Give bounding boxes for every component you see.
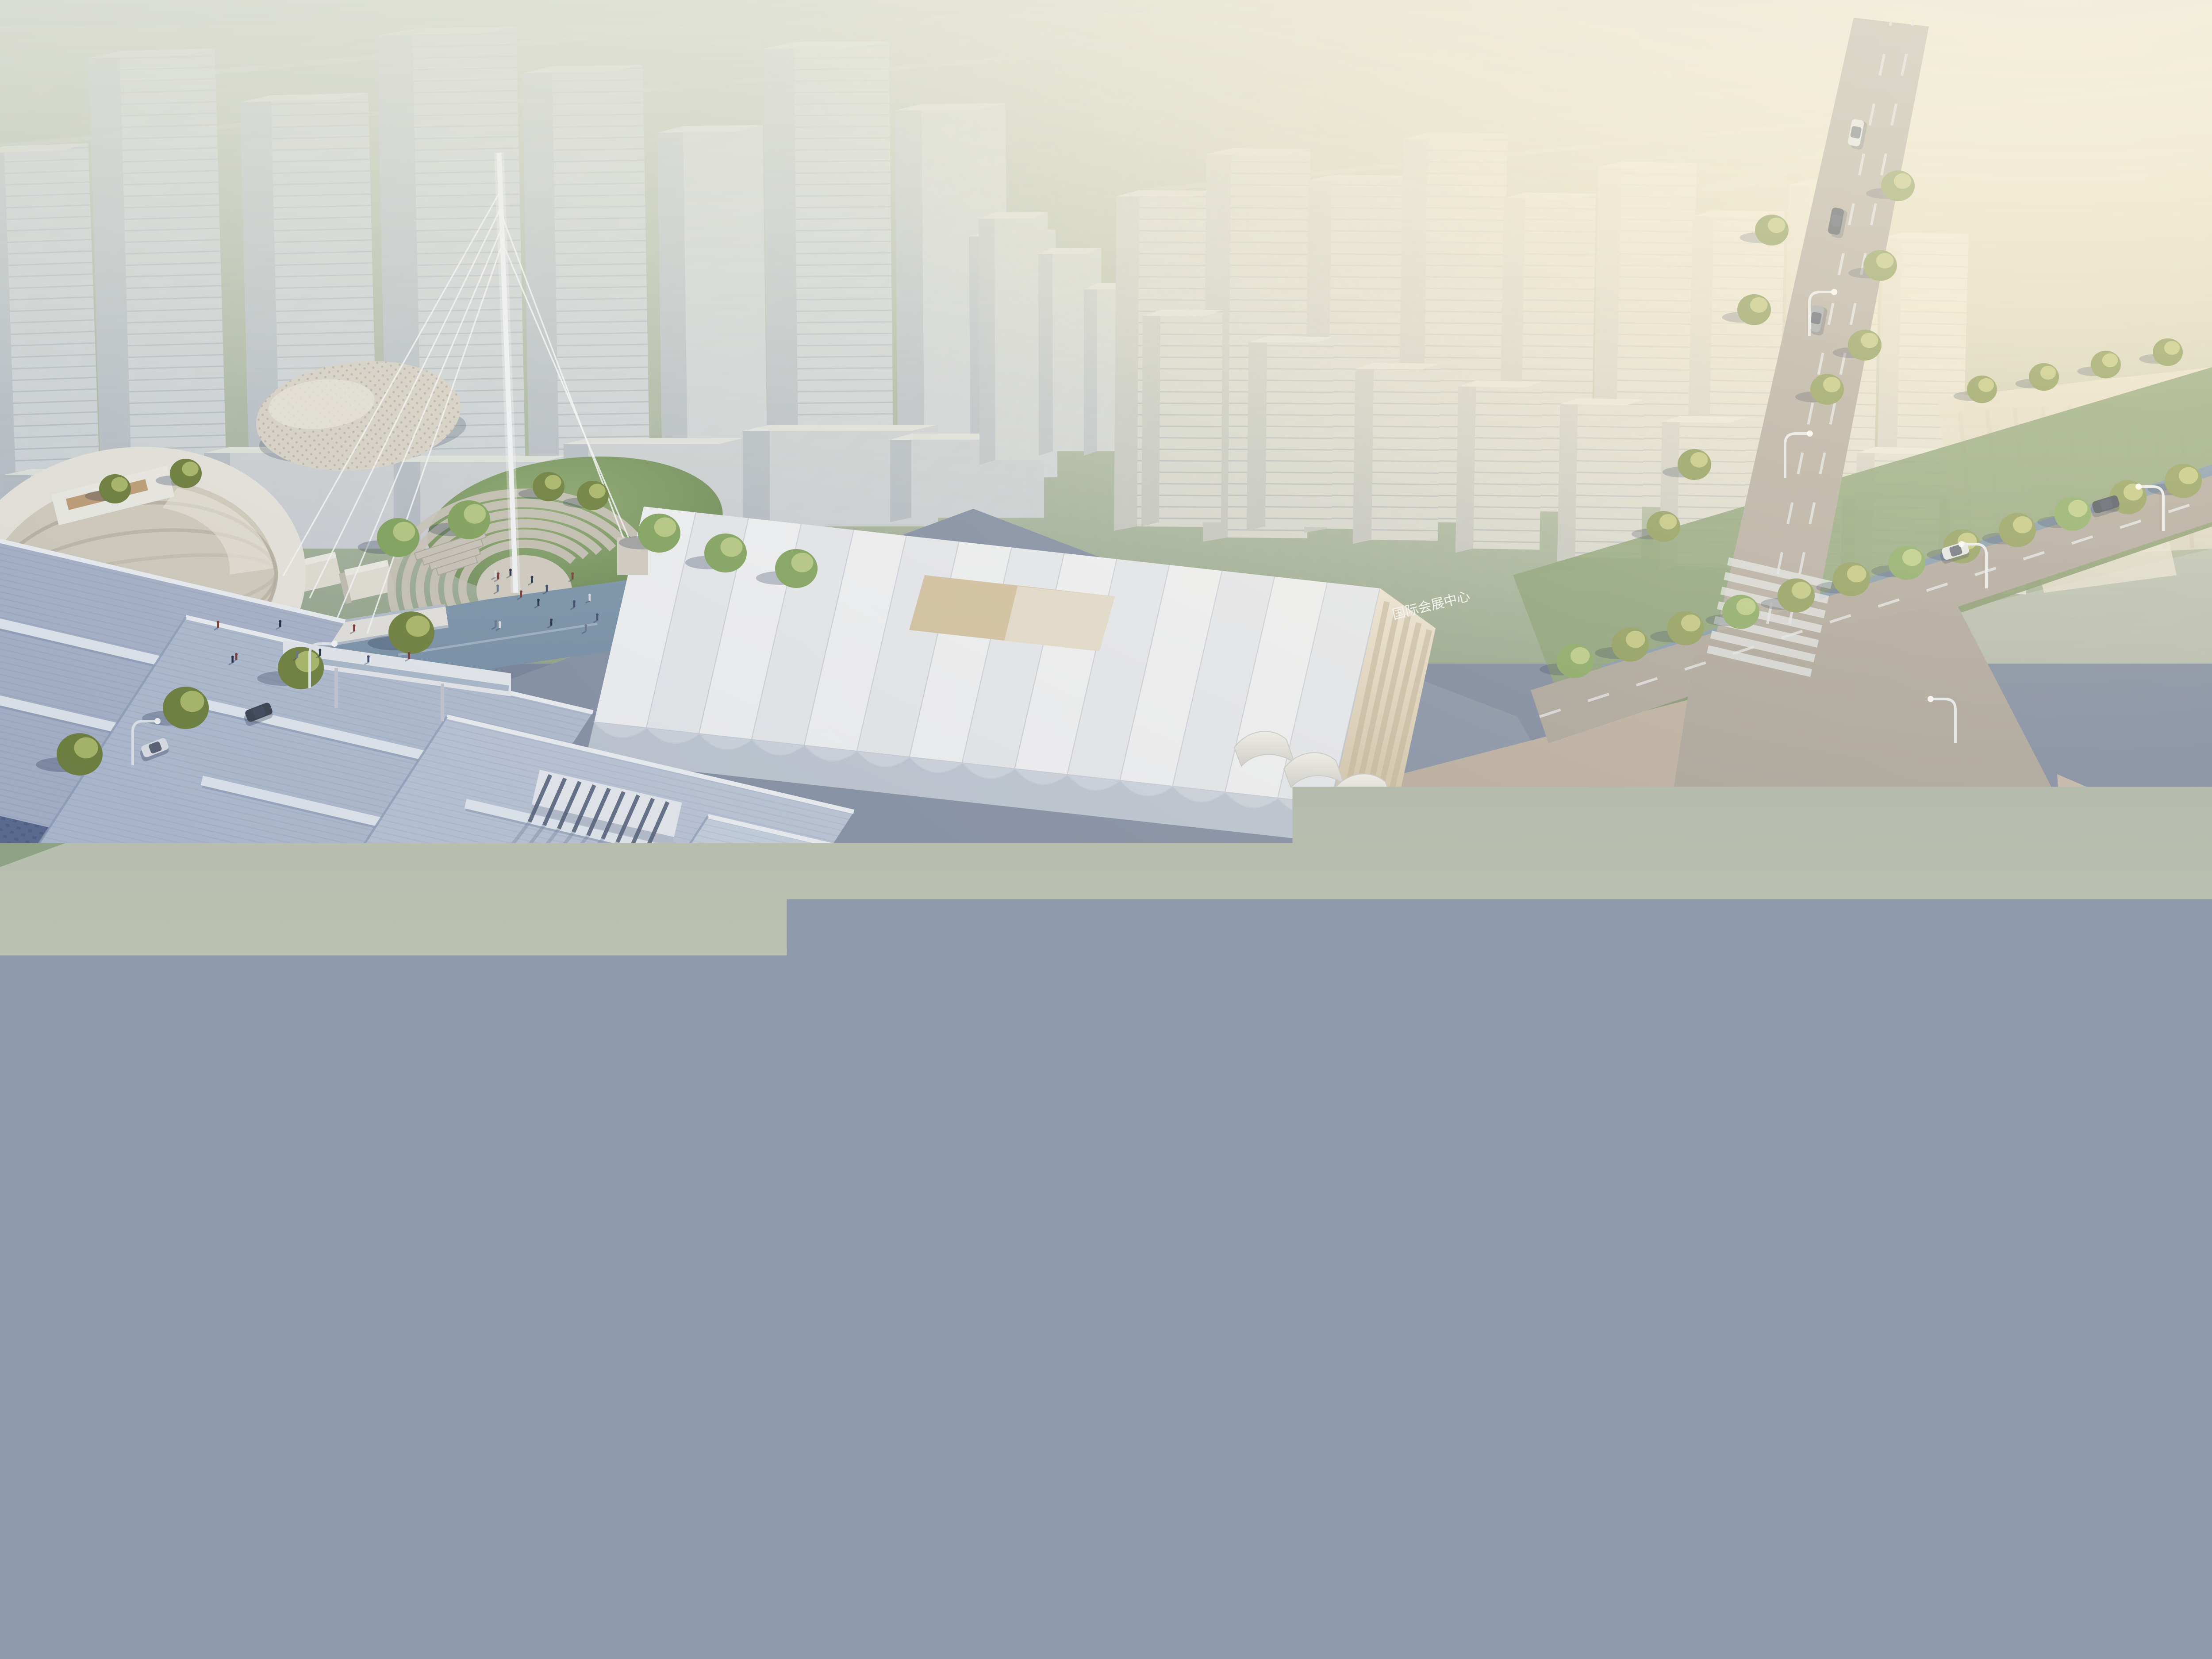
architectural-rendering: 国际会展中心 (0, 0, 2212, 1659)
scene-svg: 国际会展中心 (0, 0, 2212, 1659)
